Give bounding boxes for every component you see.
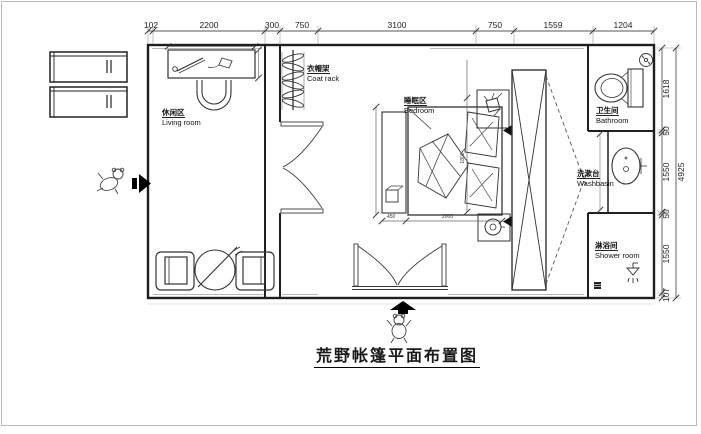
- lounge-chair-2: [50, 87, 127, 117]
- room-label-living-zh: 休闲区: [162, 108, 185, 118]
- room-label-coat-rack: 衣帽架 Coat rack: [307, 64, 339, 83]
- entrance-double-door: [352, 244, 448, 290]
- dim-right-total-4925: 4925: [676, 163, 686, 182]
- room-label-coat-rack-zh: 衣帽架: [307, 64, 330, 74]
- room-label-living: 休闲区 Living room: [162, 108, 201, 127]
- armchair-left: [156, 252, 194, 290]
- room-label-coat-rack-en: Coat rack: [307, 74, 339, 83]
- dim-top-102: 102: [129, 20, 173, 30]
- sink-icon: [612, 148, 647, 184]
- room-label-bathroom-en: Bathroom: [596, 116, 629, 125]
- teddy-bear-icon-left: [97, 168, 124, 194]
- room-label-bedroom-zh: 睡眠区: [404, 96, 427, 106]
- room-label-shower-zh: 淋浴间: [595, 241, 618, 251]
- desk-chair: [197, 80, 231, 110]
- teddy-bear-icon-bottom: [387, 314, 411, 343]
- desk: [168, 50, 255, 78]
- room-label-washbasin-en: Washbasin: [577, 179, 614, 188]
- dim-top-2200: 2200: [187, 20, 231, 30]
- dim-right-50b: 50: [661, 209, 671, 218]
- floor-plan-linework: [0, 0, 701, 434]
- room-label-washbasin-zh: 洗漱台: [577, 169, 600, 179]
- room-label-bedroom: 睡眠区 Bedroom: [404, 96, 434, 115]
- dim-top-1204: 1204: [601, 20, 645, 30]
- room-label-bedroom-en: Bedroom: [404, 106, 434, 115]
- dim-bed-2000: 2000: [442, 214, 453, 220]
- pillows: [465, 112, 499, 208]
- room-label-bathroom: 卫生间 Bathroom: [596, 106, 629, 125]
- dim-top-3100: 3100: [375, 20, 419, 30]
- floor-plan-canvas: 102 2200 300 750 3100 750 1559 1204 1618…: [0, 0, 701, 434]
- toilet-icon: [595, 69, 643, 107]
- dim-right-1550b: 1550: [661, 245, 671, 264]
- drawing-title: 荒野帐篷平面布置图: [314, 342, 480, 368]
- blanket: [418, 134, 469, 198]
- lounge-chairs: [50, 52, 127, 117]
- dim-right-107: 107: [661, 288, 671, 302]
- dim-top-750a: 750: [280, 20, 324, 30]
- interior-double-door: [281, 122, 323, 213]
- dim-top-750b: 750: [473, 20, 517, 30]
- lounge-chair-1: [50, 52, 127, 82]
- armchair-right: [236, 252, 274, 290]
- section-markers: [503, 125, 512, 227]
- floor-drain-icon: [594, 282, 601, 289]
- dim-right-1550a: 1550: [661, 163, 671, 182]
- dim-right-1618: 1618: [661, 80, 671, 99]
- entry-arrow-bottom-icon: [390, 301, 416, 314]
- room-label-living-en: Living room: [162, 118, 201, 127]
- shower-head-icon: [627, 263, 639, 283]
- dim-bed-1800: 1800: [460, 152, 466, 163]
- coat-rack-icon: [282, 50, 305, 110]
- round-table: [195, 247, 242, 290]
- bed: [408, 107, 502, 215]
- dim-right-50a: 50: [661, 126, 671, 135]
- dim-top-1559: 1559: [531, 20, 575, 30]
- room-label-bathroom-zh: 卫生间: [596, 106, 619, 116]
- wardrobe: [512, 70, 586, 290]
- bedside-bench: [382, 112, 406, 213]
- room-label-washbasin: 洗漱台 Washbasin: [577, 169, 614, 188]
- room-label-shower: 淋浴间 Shower room: [595, 241, 640, 260]
- dim-nightstand-450: 450: [387, 214, 395, 220]
- room-label-shower-en: Shower room: [595, 251, 640, 260]
- vent-icon: [640, 54, 653, 67]
